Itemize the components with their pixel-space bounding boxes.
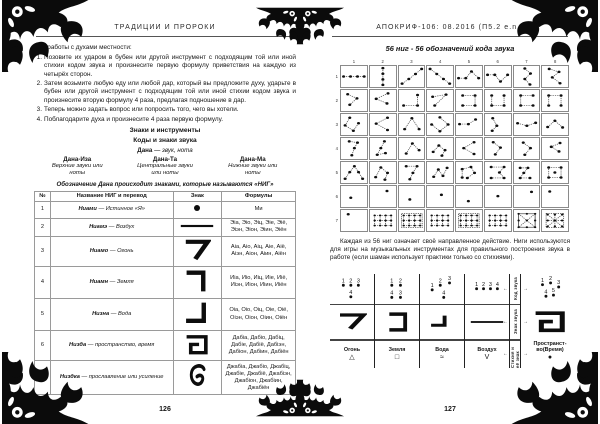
nig-column-header: № [35,192,51,202]
nig-name: Ниамо — Огонь [50,236,173,266]
nig-name: Низна — Вода [50,298,173,330]
nig-name-meaning: пространство, время [95,342,154,348]
nig-glyph-cell [541,65,569,88]
nig-glyph-cell [513,161,541,184]
nig-glyph-cell [455,137,483,160]
elements-legend: 1234Огонь△1243Земля□1234Вода≈1234ВоздухV… [330,274,570,368]
list-item-number: 2. [34,80,42,105]
table-row: 3Ниамо — ОгоньАiа, Аiо, Аiц, Аiе, Аiё, А… [35,236,296,266]
nig-glyph-cell [513,113,541,136]
element-label: Огонь [344,347,360,353]
nig-glyph-cell [513,65,541,88]
element-symbol-icon: ● [548,354,552,361]
sound-code-dots: 1243 [375,274,419,304]
grid-row-header: 4 [336,146,339,151]
arrow-right-icon: → [523,319,528,325]
list-item: 2.Затем возьмите любую еду или любой дар… [34,80,296,105]
nig-glyph-cell [513,89,541,112]
dana-column: Дана-МаНижние звуки или ноты [210,156,296,177]
svg-text:3: 3 [399,290,402,296]
nig-glyph-cell [541,161,569,184]
table-row: 4Ниамн — ЗемляИiа, Иiо, Иiц, Иiе, Иiё, И… [35,266,296,298]
legend-row-label-text: Стихия и её знак [510,341,520,368]
table-row: 2Ниамэ — ВоздухЭiа, Эiо, Эiц, Эiе, Эiё, … [35,218,296,236]
nig-glyph-cell [398,137,426,160]
element-label: Вода [435,347,449,353]
bar-glyph [173,218,222,236]
dana-def: — звук, нота [154,147,193,154]
water-glyph [420,304,464,339]
nig-glyph-cell [455,185,483,208]
nig-name-meaning: Воздух [116,224,134,230]
nig-glyph-cell [426,65,454,88]
element-symbol-icon: △ [349,354,354,361]
nig-name-term: Низна [92,311,109,317]
nig-glyph-cell [369,113,397,136]
list-item-text: Затем возьмите любую еду или любой дар, … [44,80,296,105]
nig-glyph-cell [369,89,397,112]
nig-glyph-cell [398,65,426,88]
nig-glyph-cell [398,161,426,184]
nig-glyph-cell [398,113,426,136]
dana-column-desc: Нижние звуки или ноты [221,163,285,177]
dana-column: Дана-ИзаВерхние звуки или ноты [34,156,120,177]
element-name: Пространст- во(Время)● [528,338,572,365]
nig-column-header: Знак [173,192,222,202]
element-symbol-icon: V [485,354,490,361]
svg-text:1: 1 [390,278,393,284]
nig-glyph-cell [369,65,397,88]
table-row: 6Низда — пространство, времяДабiа, Дабiо… [35,331,296,361]
nig-glyph-cell [541,89,569,112]
table-row: 5Низна — ВодаОiа, Оiо, Оiц, Оiе, Оiё, Оi… [35,298,296,330]
arrow-right-icon: → [523,351,528,357]
grid-column-header: 1 [340,59,368,64]
dana-term: Дана [137,147,152,154]
nig-column-header: Формулы [222,192,296,202]
nig-name: Ниами — Истинное «Я» [50,202,173,218]
arrow-left-icon: ← [503,286,508,292]
nig-name-meaning: Вода [118,311,131,317]
dana-column-desc: Верхние звуки или ноты [45,163,109,177]
list-item-number: 4. [34,116,42,124]
svg-text:1: 1 [342,278,345,284]
nig-column-header: Название НИГ и перевод [50,192,173,202]
nig-formulas: Эiа, Эiо, Эiц, Эiе, Эiё, Эiэн, Эiон, Эiи… [222,218,296,236]
legend-column-земля: 1243Земля□ [375,274,420,368]
seven-glyph [330,304,374,339]
svg-text:4: 4 [544,289,547,295]
nig-glyph-cell [340,89,368,112]
nig-note: Обозначение Дана происходит знаками, кот… [34,181,296,188]
grid-column-header: 3 [398,59,426,64]
dana-column-name: Дана-Иза [34,156,120,163]
nig-glyph-cell [484,161,512,184]
nig-number: 5 [35,298,51,330]
nig-glyph-cell [340,65,368,88]
nig-name-term: Ниами [78,206,96,212]
legend-row-label: ←Код звука→ [510,274,520,304]
svg-text:2: 2 [482,281,485,287]
grid-column-header: 7 [513,59,541,64]
nig-number: 7 [35,361,51,395]
element-name: Огонь△ [330,339,374,368]
nig-glyph-cell [369,161,397,184]
svg-text:3: 3 [448,276,451,282]
dana-definition: Дана — звук, нота [34,147,296,154]
svg-text:1: 1 [431,282,434,288]
svg-text:3: 3 [357,278,360,284]
nig-number: 6 [35,331,51,361]
grid-row-header: 7 [336,218,339,223]
nig-name-term: Ниамэ [89,224,107,230]
nig-glyph-cell [369,137,397,160]
grid-row-header: 3 [336,122,339,127]
intro-text: Для работы с духами местности: [34,44,296,52]
nig-number: 3 [35,236,51,266]
book-spread: ТРАДИЦИИ И ПРОРОКИ Для работы с духами м… [0,0,600,424]
seven-glyph [173,236,222,266]
table-row: 1Ниами — Истинное «Я»Ми [35,202,296,218]
grid-row-header: 2 [336,98,339,103]
nig-glyph-cell [541,113,569,136]
nig-glyph-cell [484,137,512,160]
element-symbol-icon: ≈ [440,354,444,361]
nig-glyph-cell [455,113,483,136]
subsection-title: Коды и знаки звука [34,137,296,144]
svg-text:3: 3 [489,281,492,287]
list-item: 1.Позовите их ударом в бубен или другой … [34,54,296,79]
nig-glyph-cell [455,65,483,88]
nig-glyph-cell [484,65,512,88]
bracket-glyph [375,304,419,339]
nig-name: Низда — пространство, время [50,331,173,361]
list-item-number: 1. [34,54,42,79]
nig-glyph-cell [513,185,541,208]
legend-row-label: ←Знак звука→ [510,304,520,339]
nig-glyph-cell [426,137,454,160]
grid-column-header: 4 [426,59,454,64]
list-item-text: Позовите их ударом в бубен или другой ин… [44,54,296,79]
nig-formulas: Аiа, Аiо, Аiц, Аiе, Аiё, Аiэн, Аiон, Аiи… [222,236,296,266]
nig-glyph-cell [484,89,512,112]
nig-name: Ниамн — Земля [50,266,173,298]
hook-glyph [173,361,222,395]
svg-text:1: 1 [541,277,544,283]
page-number-right: 127 [444,406,456,413]
grid-corner-spacer [331,57,339,64]
legend-row-labels: ←Код звука→←Знак звука→←Стихия и её знак… [510,274,521,368]
legend-row-label-text: Код звука [513,277,518,300]
nig-glyph-cell [426,161,454,184]
spiral-glyph [528,304,572,338]
svg-text:4: 4 [390,290,393,296]
dana-column: Дана-ТаЦентральные звуки или ноты [122,156,208,177]
nig-glyph-cell [340,185,368,208]
nig-glyph-cell [484,113,512,136]
table-row: 7Низдка — прославление или усилениеДжабi… [35,361,296,395]
legend-row-label-text: Знак звука [513,309,518,334]
svg-text:1: 1 [475,281,478,287]
grid-column-header: 2 [369,59,397,64]
right-page: АПОКРИФ-106: 08.2016 (П5.2 e.n.) 56 ниг … [330,0,570,424]
nig-glyph-cell [455,89,483,112]
nig-formulas: Оiа, Оiо, Оiц, Оiе, Оiё, Оiэн, Оiон, Оiи… [222,298,296,330]
element-label: Пространст- во(Время) [533,341,566,353]
spiral-glyph [173,331,222,361]
grid-row-header: 5 [336,170,339,175]
nig-table: №Название НИГ и переводЗнакФормулы 1Ниам… [34,191,296,395]
sound-code-dots: 1234 [420,274,464,304]
element-label: Воздух [477,347,496,353]
nig-glyph-cell [541,185,569,208]
nig-name-meaning: Истинное «Я» [106,206,145,212]
section-title: Знаки и инструменты [34,127,296,134]
svg-text:4: 4 [349,289,352,295]
arrow-left-icon: ← [503,351,508,357]
figure-title: 56 ниг - 56 обозначений кода звука [330,44,570,53]
svg-text:4: 4 [496,281,499,287]
angle-right-glyph [173,266,222,298]
sound-code-dots: 12345 [528,274,572,304]
nig-formulas: Дабiа, Дабiо, Дабiц, Дабiе, Дабiё, Дабiэ… [222,331,296,361]
nig-name-term: Низда [69,342,86,348]
nig-glyph-cell [426,209,454,232]
svg-text:2: 2 [549,276,552,282]
nig-name-meaning: Огонь [117,248,133,254]
nig-name-term: Низдка [60,374,80,380]
instruction-list: 1.Позовите их ударом в бубен или другой … [34,54,296,124]
nig-formulas: Джабiа, Джабiо, Джабiц, Джабiе, Джабiё, … [222,361,296,395]
nig-name-term: Ниамо [90,248,108,254]
nig-glyph-cell [484,209,512,232]
right-page-header: АПОКРИФ-106: 08.2016 (П5.2 e.n.) [332,24,568,37]
nig-glyph-cell [455,161,483,184]
list-item: 4.Поблагодарите духа и произнесите 4 раз… [34,116,296,124]
nig-table-body: 1Ниами — Истинное «Я»Ми2Ниамэ — ВоздухЭi… [35,202,296,395]
nig-glyph-cell [513,137,541,160]
nig-glyph-cell [426,89,454,112]
angle-left-glyph [173,298,222,330]
nig-table-head: №Название НИГ и переводЗнакФормулы [35,192,296,202]
page-number-left: 126 [159,406,171,413]
nig-name: Ниамэ — Воздух [50,218,173,236]
dana-column-desc: Центральные звуки или ноты [133,163,197,177]
sound-code-dots: 1234 [330,274,374,304]
nig-formulas: Ми [222,202,296,218]
nig-table-header-row: №Название НИГ и переводЗнакФормулы [35,192,296,202]
legend-row-label: ←Стихия и её знак→ [510,339,520,368]
nig-name-meaning: прославление или усиление [89,374,164,380]
nig-name: Низдка — прославление или усиление [50,361,173,395]
nig-glyph-cell [369,185,397,208]
list-item-text: Поблагодарите духа и произнесите 4 раза … [44,116,223,124]
nig-glyph-cell [426,113,454,136]
nig-glyph-cell [426,185,454,208]
legend-column-space: 12345Пространст- во(Время)● [528,274,572,368]
list-item: 3.Теперь можно задать вопрос или попроси… [34,106,296,114]
svg-text:5: 5 [552,288,555,294]
nig-glyph-cell [398,185,426,208]
nig-glyph-cell [340,161,368,184]
nig-glyph-cell [455,209,483,232]
svg-text:2: 2 [399,278,402,284]
svg-text:3: 3 [557,280,560,286]
nig-number: 4 [35,266,51,298]
legend-column-вода: 1234Вода≈ [420,274,465,368]
nig-grid-figure: 123456781234567 [331,57,569,232]
nig-name-meaning: Земля [117,279,134,285]
list-item-number: 3. [34,106,42,114]
element-name: Земля□ [375,339,419,368]
nig-glyph-cell [541,137,569,160]
element-name: Вода≈ [420,339,464,368]
grid-row-header: 1 [336,74,339,79]
arrow-right-icon: → [523,286,528,292]
grid-column-header: 5 [455,59,483,64]
element-label: Земля [389,347,406,353]
svg-text:2: 2 [349,278,352,284]
nig-glyph-cell [369,209,397,232]
dana-column-name: Дана-Ма [210,156,296,163]
nig-glyph-cell [398,89,426,112]
nig-name-term: Ниамн [90,279,108,285]
svg-text:4: 4 [442,290,445,296]
nig-glyph-cell [398,209,426,232]
arrow-left-icon: ← [503,319,508,325]
element-symbol-icon: □ [395,354,399,361]
svg-text:2: 2 [439,278,442,284]
nig-glyph-cell [340,209,368,232]
grid-column-header: 6 [484,59,512,64]
dana-column-name: Дана-Та [122,156,208,163]
dana-columns: Дана-ИзаВерхние звуки или нотыДана-ТаЦен… [34,156,296,177]
nig-number: 2 [35,218,51,236]
list-item-text: Теперь можно задать вопрос или попросить… [44,106,239,114]
grid-column-header: 8 [541,59,569,64]
figure-caption: Каждая из 56 ниг означает своё направлен… [330,238,570,263]
left-page: ТРАДИЦИИ И ПРОРОКИ Для работы с духами м… [34,0,296,424]
left-page-header: ТРАДИЦИИ И ПРОРОКИ [36,24,294,37]
nig-number: 1 [35,202,51,218]
nig-glyph-cell [541,209,569,232]
nig-glyph-cell [513,209,541,232]
nig-glyph-cell [340,113,368,136]
legend-column-огонь: 1234Огонь△ [330,274,375,368]
dot-glyph [173,202,222,218]
nig-formulas: Иiа, Иiо, Иiц, Иiе, Иiё, Иiэн, Иiон, Иiи… [222,266,296,298]
nig-glyph-cell [340,137,368,160]
nig-glyph-cell [484,185,512,208]
grid-row-header: 6 [336,194,339,199]
